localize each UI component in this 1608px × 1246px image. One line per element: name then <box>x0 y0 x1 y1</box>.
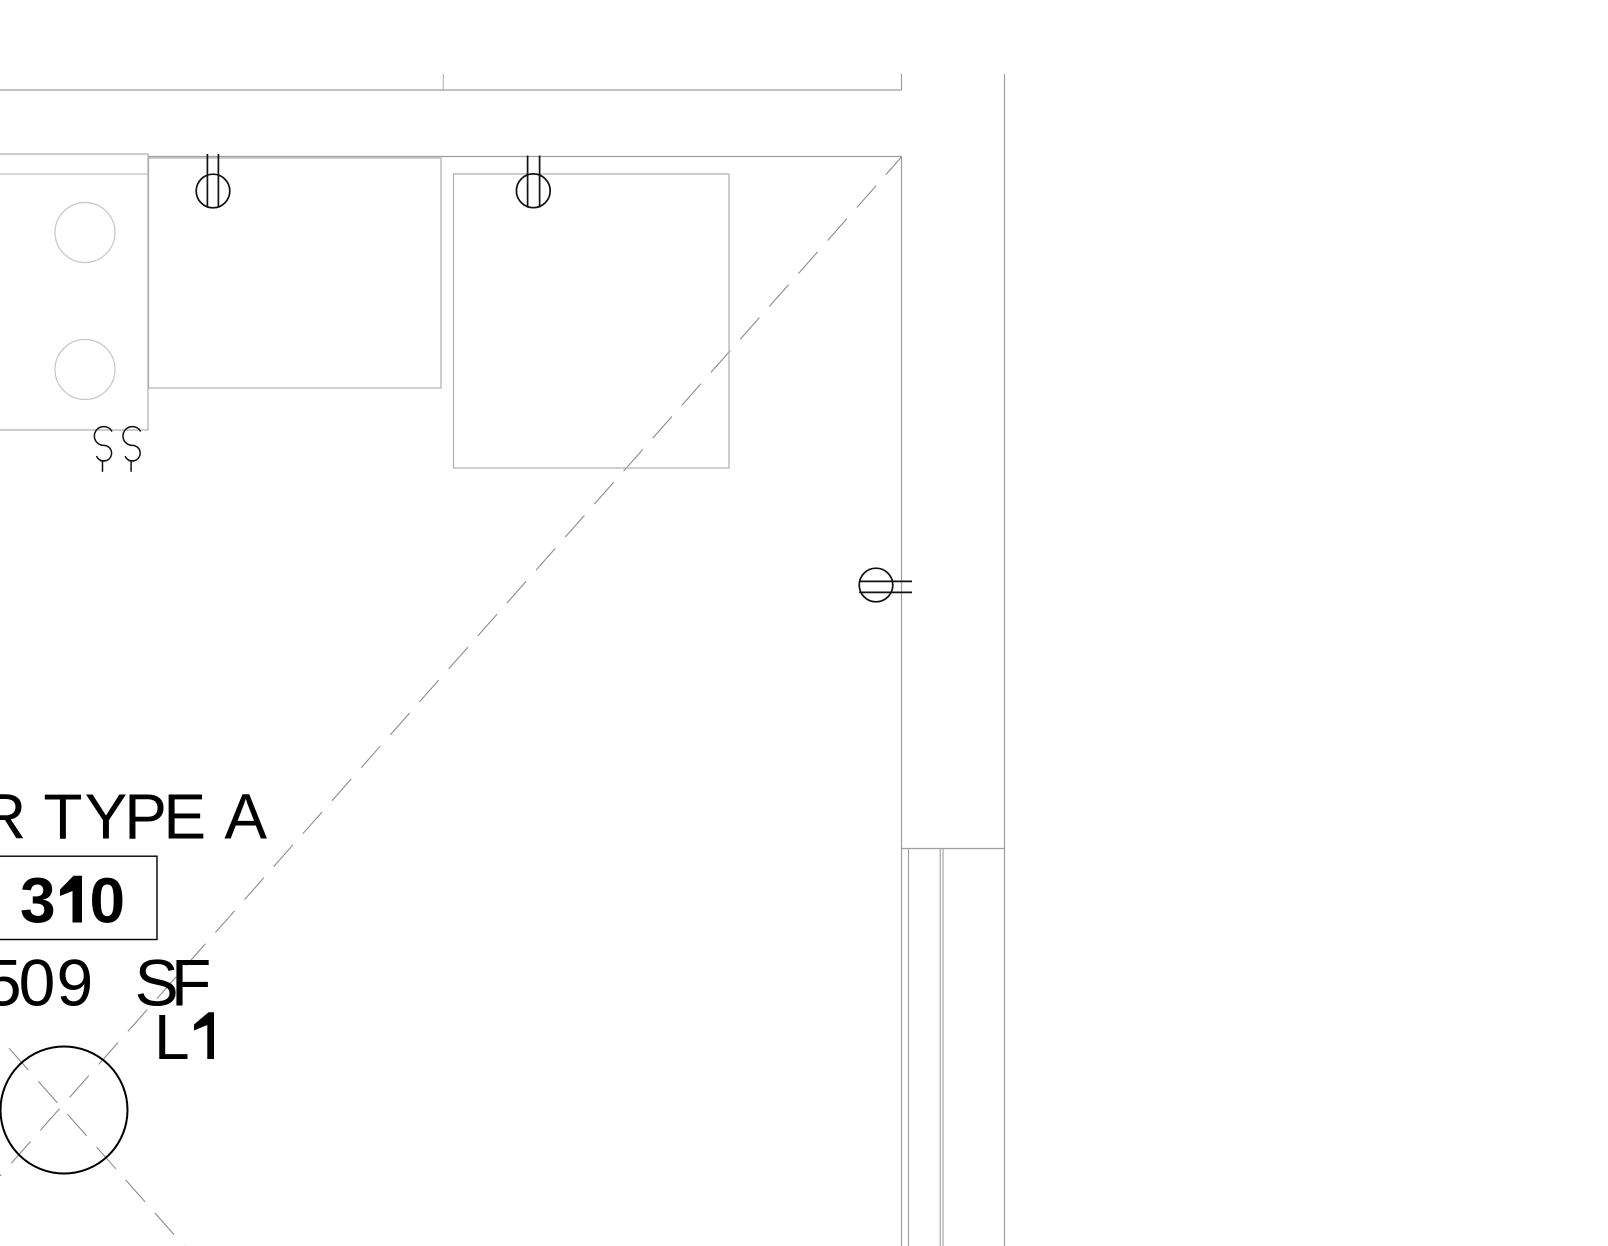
svg-text:L: L <box>154 1001 190 1073</box>
svg-text:0: 0 <box>90 865 126 937</box>
svg-text:3: 3 <box>20 865 56 937</box>
